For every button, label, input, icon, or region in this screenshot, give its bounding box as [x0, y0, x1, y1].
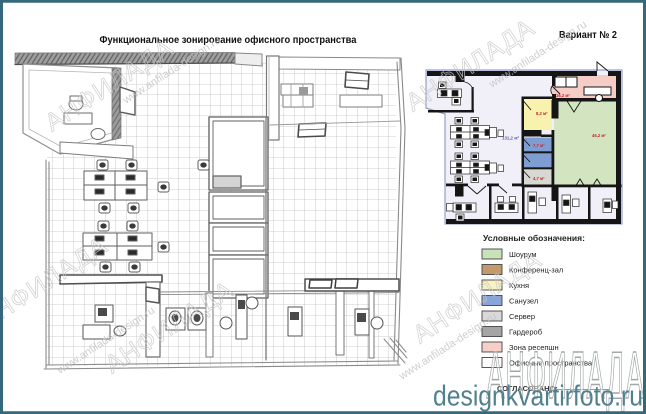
- svg-text:16,2 м²: 16,2 м²: [556, 93, 570, 98]
- svg-text:Санузел: Санузел: [509, 297, 538, 306]
- svg-text:7,7 м²: 7,7 м²: [533, 143, 545, 148]
- svg-text:131,2 м²: 131,2 м²: [502, 136, 519, 141]
- svg-text:4,7 м²: 4,7 м²: [533, 176, 545, 181]
- svg-text:8,2 м²: 8,2 м²: [536, 111, 548, 116]
- svg-text:46,2 м²: 46,2 м²: [592, 133, 606, 138]
- svg-text:Условные обозначения:: Условные обозначения:: [483, 233, 585, 243]
- svg-text:designkvartirfoto.ru: designkvartirfoto.ru: [433, 381, 643, 413]
- svg-text:Гардероб: Гардероб: [509, 328, 542, 337]
- svg-text:Сервер: Сервер: [509, 312, 535, 321]
- svg-text:Функциональное зонирование офи: Функциональное зонирование офисного прос…: [100, 34, 357, 46]
